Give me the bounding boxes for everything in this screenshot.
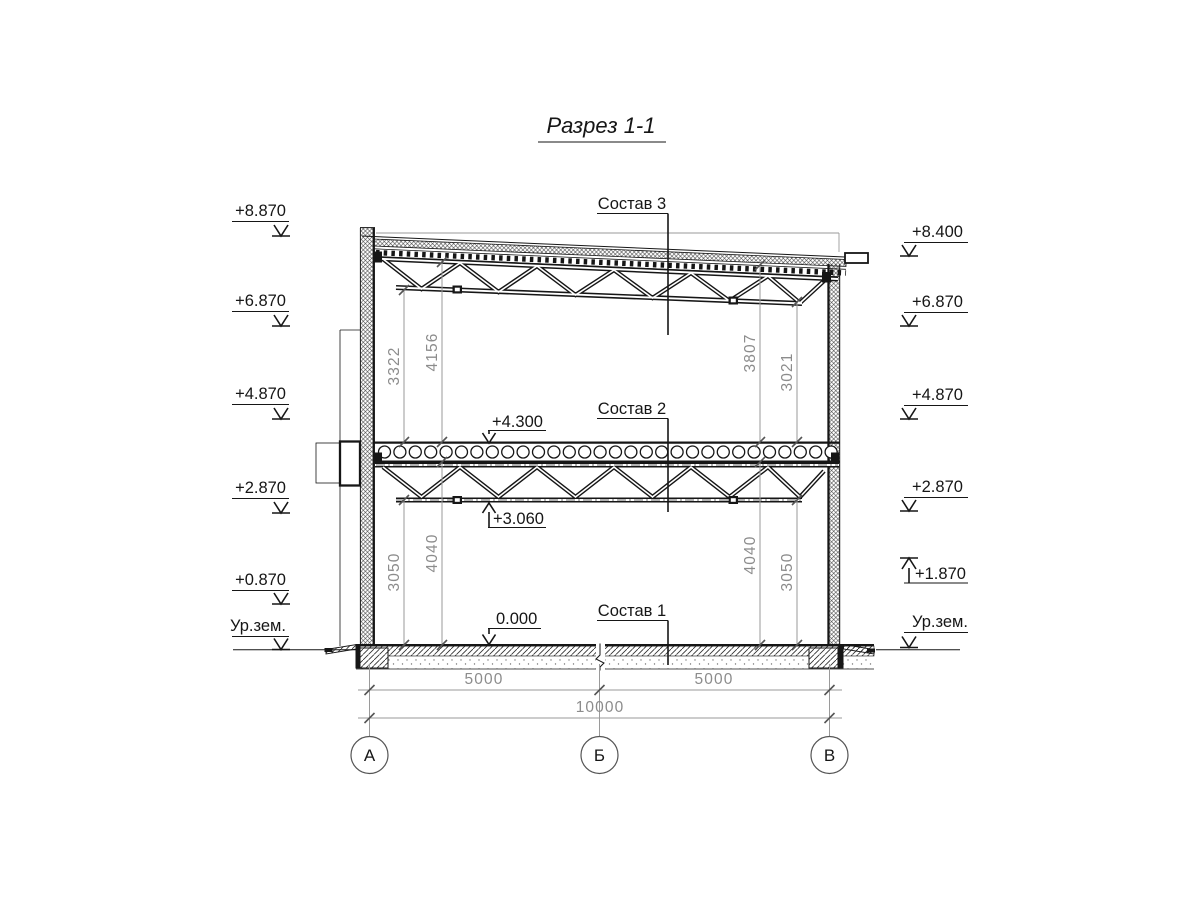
dim-lower-left-1: 4040 [424,534,441,573]
elev-left-3: +2.870 [235,479,286,497]
elev-right-ground: Ур.зем. [912,613,968,631]
axis-label-b: Б [594,746,605,765]
drawing-sheet: Разрез 1-1 [0,0,1200,900]
roof-edge-cap [845,253,868,263]
dim-upper-right-1: 3021 [779,353,796,392]
left-wall-hatch [361,228,373,646]
truss-bearing-left [374,252,382,263]
ground-floor-slab [356,644,874,671]
elev-left-2: +4.870 [235,385,286,403]
elev-left-ground: Ур.зем. [230,617,286,635]
drawing-title: Разрез 1-1 [538,113,666,142]
dim-lower-right-0: 4040 [742,536,759,575]
label-sostav-3: Состав 3 [598,195,666,213]
foundation-right [809,644,960,669]
elev-right-3: +2.870 [912,478,963,496]
label-sostav-2: Состав 2 [598,400,666,418]
elev-truss-bottom: +3.060 [493,510,544,528]
elev-left-0: +8.870 [235,202,286,220]
slab-voids [379,446,838,458]
elev-floor-zero: 0.000 [496,610,537,628]
floor-slab-hollow-core [374,443,840,462]
elev-slab-top: +4.300 [492,413,543,431]
elev-right-0: +8.400 [912,223,963,241]
axis-markers: А Б В [351,737,848,774]
slab-bearing-left [374,453,382,464]
floor-screed-hatch [356,646,874,656]
elev-right-4: +1.870 [915,565,966,583]
label-sostav-1: Состав 1 [598,602,666,620]
dim-lower-left-0: 3050 [386,553,403,592]
floor-bedding-dots [356,656,874,669]
dim-upper-right-0: 3807 [742,334,759,373]
foundation-left [233,644,388,669]
elev-right-1: +6.870 [912,293,963,311]
left-console-outer [316,443,340,483]
dim-total: 10000 [576,699,625,716]
axis-label-v: В [824,746,835,765]
dim-upper-left-1: 4156 [424,333,441,372]
left-wall [316,228,375,646]
dim-upper-left-0: 3322 [386,347,403,386]
axis-label-a: А [364,746,376,765]
elev-left-4: +0.870 [235,571,286,589]
section-drawing: Разрез 1-1 [0,0,1200,900]
truss-bearing-right [822,272,831,283]
elev-right-2: +4.870 [912,386,963,404]
page-title: Разрез 1-1 [546,113,655,138]
elevation-marks-left: +8.870 +6.870 +4.870 +2.870 +0.870 Ур.зе… [230,202,290,650]
left-console [340,442,360,486]
dim-lower-right-1: 3050 [779,553,796,592]
dim-span-left: 5000 [465,671,504,688]
elevation-marks-right: +8.400 +6.870 +4.870 +2.870 +1.870 Ур.зе… [900,223,968,648]
horizontal-dimensions: 5000 5000 10000 [358,664,842,736]
slab-bearing-right [831,453,839,464]
dim-span-right: 5000 [695,671,734,688]
elev-left-1: +6.870 [235,292,286,310]
